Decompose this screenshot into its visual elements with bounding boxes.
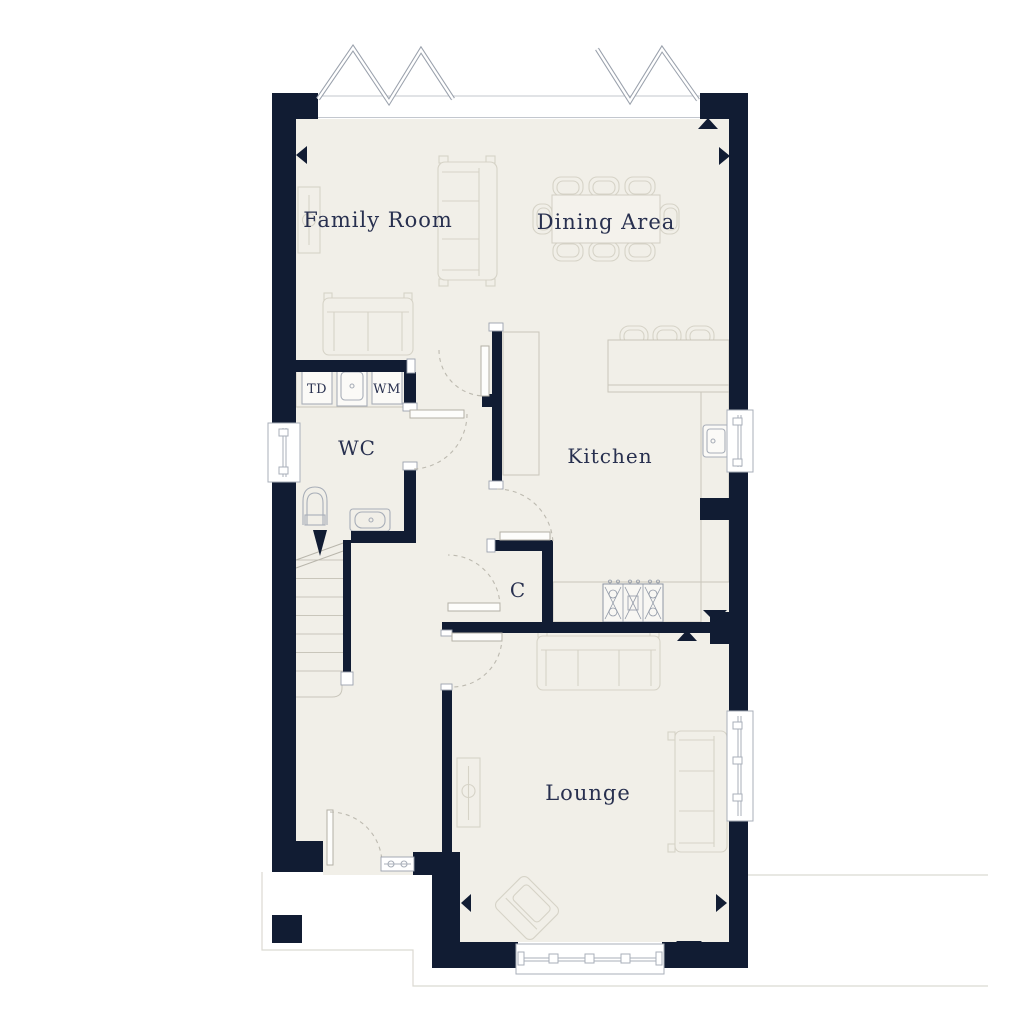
kitchen-counter-right <box>701 392 729 582</box>
lounge-left-wall <box>442 688 452 852</box>
room-label-cupboard: C <box>510 578 526 602</box>
bifold-door-opening <box>318 48 700 118</box>
bifold-door-left <box>318 48 453 102</box>
room-label-wc: WC <box>338 436 376 460</box>
appliance-label-td: TD <box>307 382 327 397</box>
left-wall <box>272 93 296 425</box>
wc-window <box>268 423 300 482</box>
right-wall <box>729 93 748 412</box>
front-door-threshold <box>381 857 414 871</box>
sofa-right <box>668 731 727 852</box>
stair-stringer <box>343 540 351 678</box>
right-wall-pier <box>700 498 748 520</box>
room-label-lounge: Lounge <box>545 781 631 805</box>
floor-plan-drawing: Family Room Dining Area Kitchen WC C Lou… <box>0 0 1024 1024</box>
left-wall <box>272 480 296 842</box>
cupboard-right-wall <box>542 540 553 632</box>
wc-top-wall <box>296 360 412 372</box>
entrance-pillar <box>272 915 302 943</box>
lounge-side-window <box>727 711 753 821</box>
sofa-small <box>323 293 413 355</box>
tall-unit <box>503 332 539 475</box>
room-label-family-room: Family Room <box>303 208 453 232</box>
room-label-kitchen: Kitchen <box>567 444 652 468</box>
left-wall-bottom-block <box>272 841 323 872</box>
appliance-label-wm: WM <box>373 382 401 397</box>
hall-centre-wall <box>492 330 502 483</box>
room-label-dining-area: Dining Area <box>537 210 676 234</box>
bifold-door-right <box>597 49 698 101</box>
wc-bottom-wall <box>351 531 416 543</box>
breakfast-bar-counter <box>608 340 729 392</box>
floor-plan-page: Family Room Dining Area Kitchen WC C Lou… <box>0 0 1024 1024</box>
lounge-outer-left-wall <box>432 852 460 968</box>
bottom-wall <box>662 942 748 968</box>
kitchen-window <box>727 410 753 472</box>
lounge-top-wall <box>442 622 748 633</box>
stair-newel-cap <box>341 672 353 685</box>
kitchen-sink <box>703 425 729 457</box>
wc-right-wall <box>404 464 416 534</box>
sofa-three-seat <box>537 631 660 690</box>
range-cooker <box>603 580 663 622</box>
lounge-bottom-window <box>516 944 664 974</box>
